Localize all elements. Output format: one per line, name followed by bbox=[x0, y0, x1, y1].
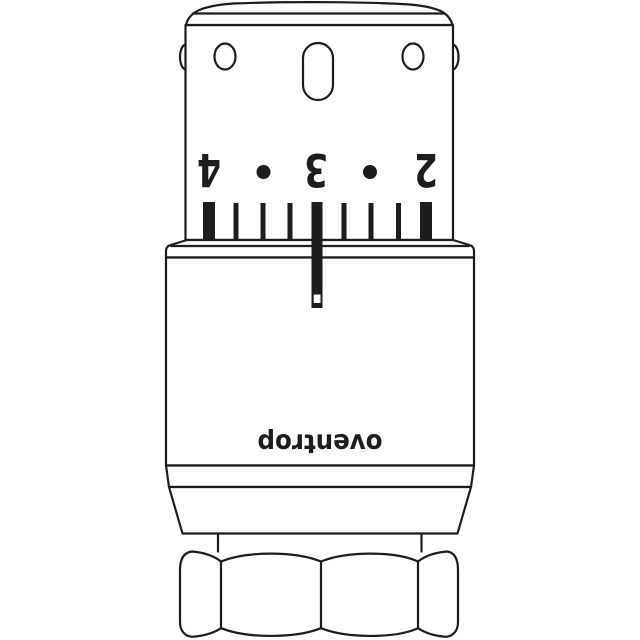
scale-dot-left bbox=[257, 165, 271, 179]
scale-number-2: 2 bbox=[414, 143, 438, 196]
body-ring-band bbox=[166, 466, 474, 488]
scale-number-3: 3 bbox=[304, 143, 328, 196]
technical-drawing-canvas: 4 3 2 oventrop bbox=[0, 0, 640, 640]
knob-hole-left bbox=[215, 44, 236, 70]
setting-indicator-mark bbox=[312, 202, 323, 308]
base-taper bbox=[169, 487, 471, 534]
knob-slot-center bbox=[303, 43, 333, 100]
thermostat-head-drawing: 4 3 2 oventrop bbox=[0, 0, 640, 640]
knob-hole-right bbox=[403, 44, 424, 70]
brand-logo-text: oventrop bbox=[258, 428, 383, 459]
scale-dot-right bbox=[363, 165, 377, 179]
scale-number-4: 4 bbox=[197, 143, 221, 196]
